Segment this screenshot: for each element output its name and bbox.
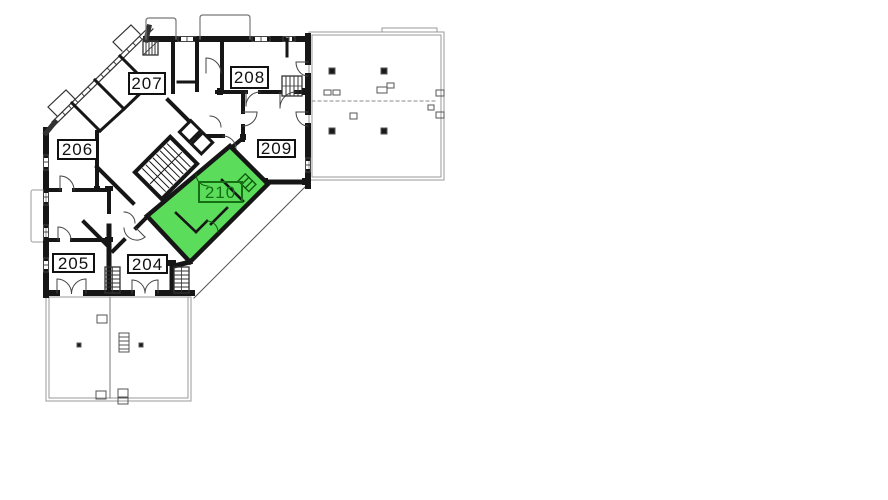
unit-label-204[interactable]: 204	[127, 254, 168, 274]
unit-label-209[interactable]: 209	[257, 139, 296, 158]
unit-label-210[interactable]: 210	[198, 181, 243, 203]
unit-label-207[interactable]: 207	[128, 72, 166, 95]
top-balconies	[146, 15, 250, 39]
unit-label-208[interactable]: 208	[230, 66, 269, 89]
floor-plan-page: 204 205 206 207 208 209 210	[0, 0, 888, 500]
terrace-symbols	[77, 68, 444, 404]
unit-label-205[interactable]: 205	[52, 253, 95, 273]
unit-label-206[interactable]: 206	[57, 139, 98, 160]
